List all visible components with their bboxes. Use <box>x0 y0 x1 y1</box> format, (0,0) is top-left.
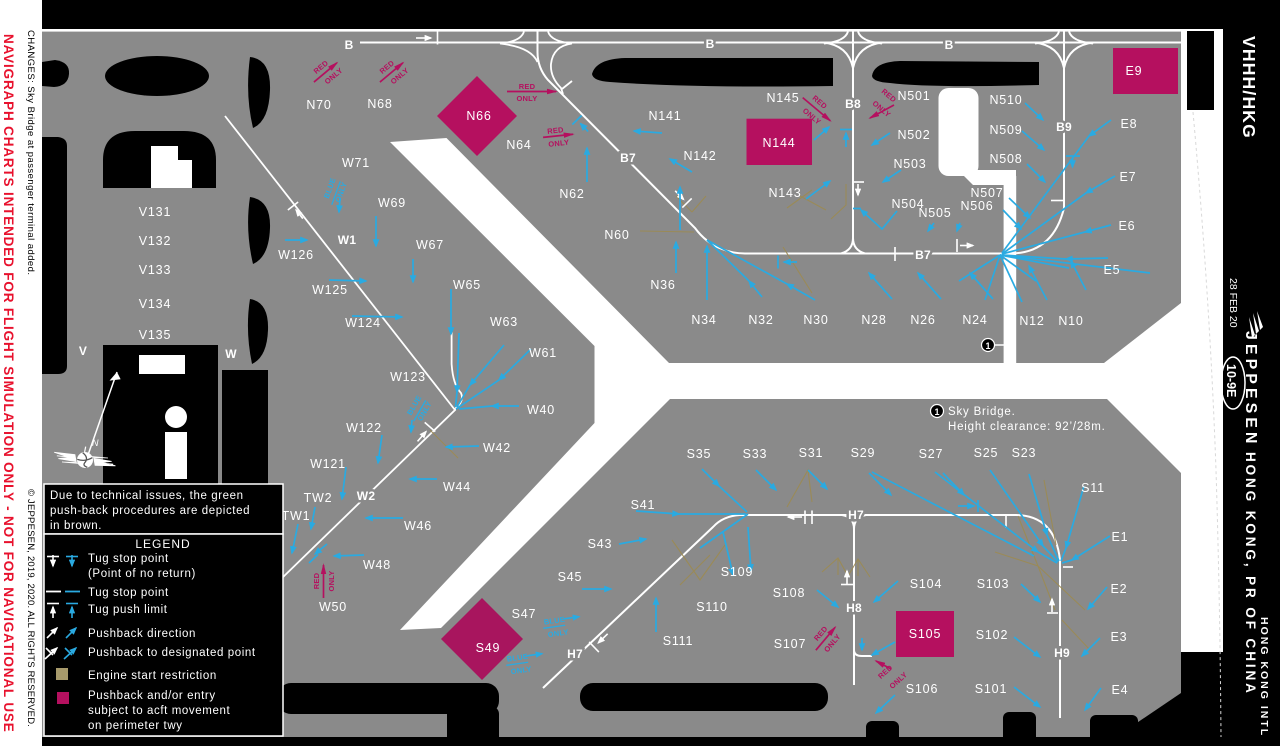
svg-text:S49: S49 <box>476 641 501 655</box>
svg-text:N64: N64 <box>506 138 531 152</box>
svg-text:W123: W123 <box>390 370 426 384</box>
svg-text:S105: S105 <box>909 627 941 641</box>
svg-text:V133: V133 <box>139 263 171 277</box>
svg-text:B: B <box>945 38 954 52</box>
svg-text:B: B <box>706 37 715 51</box>
svg-text:N68: N68 <box>367 97 392 111</box>
svg-text:H9: H9 <box>1054 646 1070 660</box>
svg-text:S45: S45 <box>558 570 583 584</box>
svg-text:N70: N70 <box>306 98 331 112</box>
svg-text:on perimeter twy: on perimeter twy <box>88 720 183 732</box>
svg-text:W44: W44 <box>443 480 471 494</box>
svg-text:VHHH/HKG: VHHH/HKG <box>1239 36 1259 139</box>
svg-text:W121: W121 <box>310 457 346 471</box>
svg-text:V134: V134 <box>139 297 171 311</box>
svg-text:S103: S103 <box>977 577 1009 591</box>
svg-text:Pushback and/or entry: Pushback and/or entry <box>88 690 216 702</box>
svg-text:HONG KONG, PR OF CHINA: HONG KONG, PR OF CHINA <box>1243 452 1258 696</box>
svg-text:E9: E9 <box>1126 64 1143 78</box>
svg-text:E1: E1 <box>1112 530 1129 544</box>
svg-text:N507: N507 <box>970 186 1003 200</box>
svg-text:W69: W69 <box>378 196 406 210</box>
svg-text:S106: S106 <box>906 682 938 696</box>
svg-text:E6: E6 <box>1119 219 1136 233</box>
svg-text:RED: RED <box>547 125 565 136</box>
svg-text:S25: S25 <box>974 446 999 460</box>
svg-text:(Point of no return): (Point of no return) <box>88 568 196 580</box>
svg-text:N10: N10 <box>1058 314 1083 328</box>
svg-text:E4: E4 <box>1112 683 1129 697</box>
svg-text:V: V <box>79 344 87 358</box>
svg-text:E7: E7 <box>1120 170 1137 184</box>
svg-text:B7: B7 <box>915 248 931 262</box>
svg-text:Tug stop point: Tug stop point <box>88 553 169 565</box>
svg-text:W46: W46 <box>404 519 432 533</box>
svg-text:© JEPPESEN, 2019, 2020. ALL RI: © JEPPESEN, 2019, 2020. ALL RIGHTS RESER… <box>25 489 36 727</box>
svg-text:Pushback direction: Pushback direction <box>88 628 196 640</box>
svg-text:N30: N30 <box>803 313 828 327</box>
svg-text:N502: N502 <box>897 128 930 142</box>
svg-text:S47: S47 <box>512 607 537 621</box>
svg-text:10-9E: 10-9E <box>1224 364 1238 397</box>
svg-text:W67: W67 <box>416 238 444 252</box>
svg-text:N501: N501 <box>897 89 930 103</box>
svg-text:S104: S104 <box>910 577 942 591</box>
svg-text:N: N <box>92 438 99 448</box>
svg-text:N145: N145 <box>766 91 799 105</box>
svg-text:TW1: TW1 <box>282 509 311 523</box>
svg-text:W1: W1 <box>338 233 357 247</box>
svg-text:N503: N503 <box>893 157 926 171</box>
svg-text:28 FEB 20: 28 FEB 20 <box>1227 278 1239 328</box>
svg-text:S108: S108 <box>773 586 805 600</box>
svg-text:ONLY: ONLY <box>517 94 538 103</box>
svg-text:E8: E8 <box>1121 117 1138 131</box>
svg-text:N24: N24 <box>962 313 987 327</box>
svg-text:W65: W65 <box>453 278 481 292</box>
svg-text:N508: N508 <box>989 152 1022 166</box>
svg-text:N505: N505 <box>918 206 951 220</box>
svg-text:Pushback to designated point: Pushback to designated point <box>88 647 256 659</box>
svg-text:TW2: TW2 <box>304 491 333 505</box>
svg-text:S41: S41 <box>631 498 656 512</box>
svg-text:S102: S102 <box>976 628 1008 642</box>
svg-text:N66: N66 <box>466 109 491 123</box>
svg-text:S110: S110 <box>696 600 727 614</box>
svg-text:W50: W50 <box>319 600 347 614</box>
svg-text:S33: S33 <box>743 447 768 461</box>
svg-text:N36: N36 <box>650 278 675 292</box>
svg-text:N32: N32 <box>748 313 773 327</box>
svg-text:H7: H7 <box>848 508 864 522</box>
svg-text:in brown.: in brown. <box>50 520 102 532</box>
svg-text:E5: E5 <box>1104 263 1121 277</box>
svg-text:S31: S31 <box>799 446 824 460</box>
svg-text:S111: S111 <box>663 634 694 648</box>
svg-text:V132: V132 <box>139 234 171 248</box>
svg-text:W122: W122 <box>346 421 382 435</box>
svg-text:W61: W61 <box>529 346 557 360</box>
svg-text:S23: S23 <box>1012 446 1037 460</box>
svg-text:N28: N28 <box>861 313 886 327</box>
svg-text:B: B <box>345 38 354 52</box>
svg-text:CHANGES: Sky Bridge at passen: CHANGES: Sky Bridge at passenger termina… <box>25 30 36 276</box>
svg-text:NAVIGRAPH CHARTS INTENDED FOR: NAVIGRAPH CHARTS INTENDED FOR FLIGHT SIM… <box>1 34 16 732</box>
svg-text:1: 1 <box>934 407 939 417</box>
svg-text:S29: S29 <box>851 446 876 460</box>
svg-text:Tug push limit: Tug push limit <box>88 604 168 616</box>
svg-text:RED: RED <box>519 82 536 91</box>
svg-text:H8: H8 <box>846 601 862 615</box>
svg-text:N144: N144 <box>762 136 795 150</box>
svg-text:S43: S43 <box>588 537 613 551</box>
svg-text:E3: E3 <box>1111 630 1128 644</box>
svg-text:H7: H7 <box>567 647 583 661</box>
svg-text:W40: W40 <box>527 403 555 417</box>
svg-text:W: W <box>225 347 237 361</box>
svg-text:B8: B8 <box>845 97 861 111</box>
svg-text:Sky Bridge.: Sky Bridge. <box>948 406 1016 418</box>
svg-text:V135: V135 <box>139 328 171 342</box>
svg-text:S107: S107 <box>774 637 806 651</box>
svg-text:V131: V131 <box>139 205 171 219</box>
svg-text:N509: N509 <box>989 123 1022 137</box>
svg-text:W2: W2 <box>357 489 376 503</box>
svg-text:N26: N26 <box>910 313 935 327</box>
svg-text:push-back procedures are depic: push-back procedures are depicted <box>50 505 250 517</box>
svg-text:B7: B7 <box>620 151 636 165</box>
svg-text:S35: S35 <box>687 447 712 461</box>
svg-text:W63: W63 <box>490 315 518 329</box>
svg-text:N12: N12 <box>1019 314 1044 328</box>
svg-text:W48: W48 <box>363 558 391 572</box>
svg-text:N141: N141 <box>648 109 681 123</box>
svg-text:N62: N62 <box>559 187 584 201</box>
svg-text:Due to technical issues, the g: Due to technical issues, the green <box>50 490 244 502</box>
svg-text:B9: B9 <box>1056 120 1072 134</box>
svg-text:S11: S11 <box>1081 481 1105 495</box>
svg-text:N34: N34 <box>691 313 716 327</box>
svg-text:N510: N510 <box>989 93 1022 107</box>
svg-text:LEGEND: LEGEND <box>135 537 190 551</box>
svg-text:1: 1 <box>985 341 990 351</box>
svg-text:S109: S109 <box>721 565 753 579</box>
svg-text:W126: W126 <box>278 248 314 262</box>
svg-text:Height clearance: 92’/28m.: Height clearance: 92’/28m. <box>948 421 1106 433</box>
svg-text:ONLY: ONLY <box>327 571 336 592</box>
svg-text:W125: W125 <box>312 283 348 297</box>
svg-text:Engine start restriction: Engine start restriction <box>88 670 217 682</box>
svg-text:N506: N506 <box>960 199 993 213</box>
svg-text:HONG KONG INTL: HONG KONG INTL <box>1258 617 1270 737</box>
svg-text:E2: E2 <box>1111 582 1128 596</box>
svg-text:N142: N142 <box>683 149 716 163</box>
svg-text:N143: N143 <box>768 186 801 200</box>
svg-text:subject to acft movement: subject to acft movement <box>88 705 230 717</box>
svg-text:W71: W71 <box>342 156 370 170</box>
svg-text:S101: S101 <box>975 682 1007 696</box>
svg-text:W42: W42 <box>483 441 511 455</box>
svg-text:W124: W124 <box>345 316 381 330</box>
svg-text:N60: N60 <box>604 228 629 242</box>
svg-text:S27: S27 <box>919 447 944 461</box>
svg-text:Tug stop point: Tug stop point <box>88 587 169 599</box>
svg-text:RED: RED <box>312 572 321 589</box>
